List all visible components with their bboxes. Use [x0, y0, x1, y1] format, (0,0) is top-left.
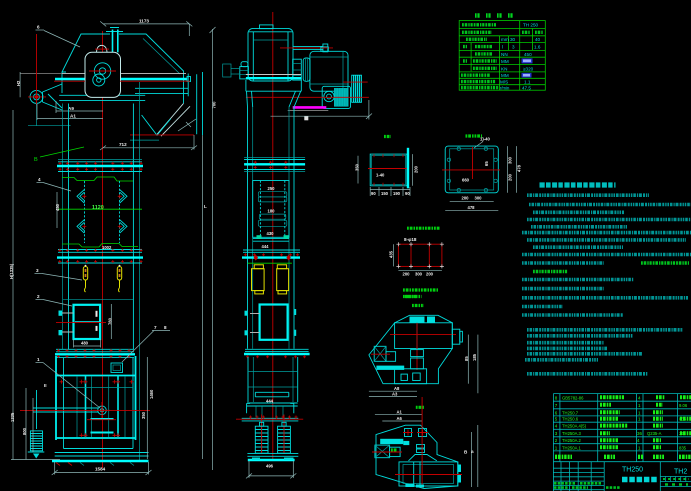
svg-text:A1: A1 [397, 410, 403, 415]
svg-text:1.1: 1.1 [524, 79, 531, 84]
svg-text:A6: A6 [397, 416, 403, 421]
svg-text:300: 300 [415, 271, 423, 276]
svg-text:TH250.7: TH250.7 [562, 410, 579, 415]
svg-text:835: 835 [679, 445, 687, 450]
svg-text:350: 350 [141, 411, 146, 419]
svg-text:6: 6 [37, 25, 40, 30]
svg-text:8-φ18: 8-φ18 [404, 237, 417, 242]
svg-text:2: 2 [37, 294, 40, 299]
svg-text:150: 150 [381, 191, 389, 196]
svg-text:8: 8 [164, 325, 167, 330]
svg-text:II: II [44, 383, 47, 388]
svg-text:190: 190 [393, 191, 401, 196]
svg-text:660: 660 [462, 178, 470, 183]
svg-text:300: 300 [508, 156, 513, 164]
svg-text:444: 444 [262, 244, 270, 249]
svg-text:A8: A8 [394, 386, 400, 391]
svg-text:200: 200 [508, 173, 513, 181]
svg-text:H2: H2 [16, 80, 21, 86]
svg-text:B: B [34, 157, 38, 163]
svg-text:712: 712 [119, 142, 127, 147]
svg-text:435: 435 [389, 250, 394, 258]
svg-text:800: 800 [22, 427, 27, 435]
svg-text:M/S: M/S [500, 79, 508, 84]
svg-text:478: 478 [516, 164, 521, 172]
svg-text:A3: A3 [392, 392, 398, 397]
svg-text:40: 40 [535, 37, 541, 42]
svg-text:200: 200 [462, 196, 470, 201]
svg-text:MM: MM [501, 73, 509, 78]
svg-text:H(1335): H(1335) [9, 263, 14, 279]
svg-text:47.5: 47.5 [522, 86, 531, 91]
svg-text:200: 200 [414, 165, 419, 173]
svg-text:1335: 1335 [10, 412, 15, 422]
svg-text:30: 30 [510, 37, 516, 42]
svg-text:180: 180 [268, 209, 276, 214]
svg-text:TH2: TH2 [674, 469, 687, 476]
svg-text:L: L [204, 204, 207, 209]
svg-text:≥320: ≥320 [523, 66, 534, 71]
svg-text:TH250.6: TH250.6 [562, 417, 579, 422]
svg-text:r/min: r/min [500, 86, 510, 91]
svg-text:1.6: 1.6 [534, 45, 541, 50]
svg-text:MM: MM [501, 59, 509, 64]
svg-text:GB5782-86: GB5782-86 [562, 396, 584, 401]
svg-text:1584: 1584 [95, 467, 106, 472]
svg-text:1120: 1120 [92, 205, 104, 211]
svg-text:3: 3 [36, 268, 39, 273]
svg-text:TH250A.4(5): TH250A.4(5) [562, 424, 587, 429]
svg-text:36: 36 [637, 431, 643, 436]
svg-text:65: 65 [484, 161, 489, 166]
svg-text:1: 1 [37, 357, 40, 362]
svg-text:478: 478 [468, 205, 476, 210]
svg-text:Q235-A: Q235-A [647, 431, 662, 436]
svg-text:760: 760 [108, 317, 113, 325]
svg-text:l: l [502, 45, 503, 50]
svg-text:TH250A.1: TH250A.1 [562, 445, 582, 450]
svg-text:200: 200 [426, 271, 434, 276]
svg-text:TH 250: TH 250 [523, 23, 539, 28]
svg-text:480: 480 [81, 341, 89, 346]
svg-text:250: 250 [268, 186, 276, 191]
svg-text:A1: A1 [70, 114, 76, 119]
svg-text:3: 3 [512, 45, 515, 50]
svg-text:TH250A.2: TH250A.2 [562, 438, 582, 443]
svg-text:1-40: 1-40 [376, 173, 385, 178]
svg-text:185: 185 [472, 353, 477, 361]
svg-text:9.06: 9.06 [679, 403, 688, 408]
svg-text:85: 85 [464, 356, 469, 361]
svg-text:200: 200 [403, 271, 411, 276]
svg-text:496: 496 [266, 464, 274, 469]
svg-text:450: 450 [55, 203, 60, 211]
svg-text:450: 450 [524, 52, 532, 57]
svg-text:TH250: TH250 [622, 467, 643, 474]
svg-text:4: 4 [38, 177, 41, 182]
svg-text:90: 90 [371, 191, 376, 196]
svg-text:TH250A.3: TH250A.3 [562, 431, 582, 436]
svg-text:a: a [471, 449, 474, 454]
svg-text:300: 300 [475, 196, 483, 201]
svg-text:90: 90 [405, 191, 410, 196]
svg-text:1460: 1460 [149, 389, 154, 399]
svg-text:1173: 1173 [139, 18, 149, 23]
svg-text:350: 350 [355, 163, 360, 171]
svg-text:mm: mm [501, 37, 509, 42]
svg-text:430: 430 [267, 231, 275, 236]
svg-text:1)-40: 1)-40 [480, 137, 490, 142]
svg-text:NN: NN [501, 52, 508, 57]
svg-text:KN: KN [501, 66, 507, 71]
svg-text:7: 7 [154, 325, 157, 330]
